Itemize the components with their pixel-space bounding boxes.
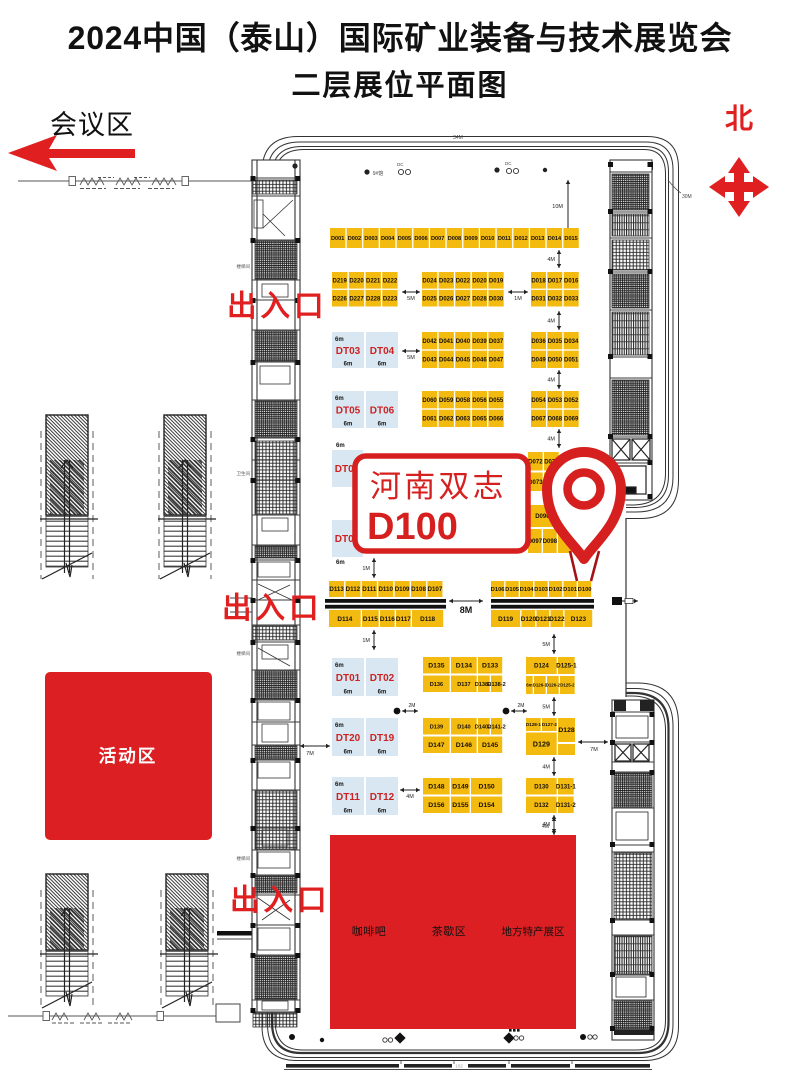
svg-text:6m: 6m <box>336 560 345 566</box>
svg-text:5M: 5M <box>542 705 550 711</box>
svg-text:D127-2: D127-2 <box>542 722 558 727</box>
svg-text:D150: D150 <box>478 784 494 791</box>
svg-text:D051: D051 <box>564 358 579 364</box>
svg-text:卫生间: 卫生间 <box>237 470 251 477</box>
svg-text:1M: 1M <box>362 566 370 572</box>
svg-text:D220: D220 <box>349 278 364 284</box>
svg-text:4M: 4M <box>542 765 550 771</box>
svg-text:出入口: 出入口 <box>222 592 323 625</box>
svg-text:D110: D110 <box>378 586 393 593</box>
svg-text:D013: D013 <box>531 236 544 242</box>
svg-text:10M: 10M <box>552 204 563 210</box>
svg-text:DC: DC <box>397 162 404 167</box>
svg-text:D221: D221 <box>366 278 381 284</box>
svg-text:D017: D017 <box>548 278 563 284</box>
svg-text:D098: D098 <box>543 539 558 545</box>
svg-text:出入口: 出入口 <box>230 884 331 917</box>
svg-text:D003: D003 <box>364 236 377 242</box>
svg-text:D131-2: D131-2 <box>556 803 576 809</box>
svg-text:活动区: 活动区 <box>99 746 158 766</box>
svg-text:6m: 6m <box>344 422 353 428</box>
svg-text:D035: D035 <box>548 339 563 345</box>
svg-text:D061: D061 <box>422 417 437 423</box>
svg-text:D130: D130 <box>534 784 549 790</box>
svg-text:D118: D118 <box>420 616 435 623</box>
svg-text:D155: D155 <box>452 802 468 809</box>
svg-text:二层展位平面图: 二层展位平面图 <box>291 68 508 102</box>
svg-text:D102: D102 <box>549 587 563 593</box>
svg-text:D028: D028 <box>472 296 487 302</box>
svg-text:D018: D018 <box>531 278 546 284</box>
svg-text:DT04: DT04 <box>370 346 395 357</box>
svg-text:2M: 2M <box>518 703 525 709</box>
svg-text:DT12: DT12 <box>370 792 395 803</box>
svg-text:D125-2: D125-2 <box>560 683 575 688</box>
svg-text:DT20: DT20 <box>336 733 361 744</box>
svg-text:D036: D036 <box>531 339 546 345</box>
svg-text:D219: D219 <box>333 278 348 284</box>
svg-text:D037: D037 <box>489 339 504 345</box>
svg-text:河南双志: 河南双志 <box>370 469 507 504</box>
svg-text:D149: D149 <box>452 784 468 791</box>
svg-text:6m: 6m <box>335 782 344 788</box>
svg-text:2M: 2M <box>409 703 416 709</box>
svg-text:5M: 5M <box>542 642 550 648</box>
svg-text:4M: 4M <box>406 794 414 800</box>
svg-text:D066: D066 <box>489 417 504 423</box>
svg-text:1M: 1M <box>362 638 370 644</box>
svg-text:6m: 6m <box>526 683 532 688</box>
svg-text:D114: D114 <box>337 616 352 623</box>
svg-text:北: 北 <box>725 103 753 134</box>
svg-text:D112: D112 <box>346 586 361 593</box>
svg-text:DC: DC <box>505 161 512 166</box>
svg-text:8M: 8M <box>460 605 473 615</box>
svg-text:D140: D140 <box>457 724 470 730</box>
svg-text:DT03: DT03 <box>336 346 361 357</box>
svg-text:7M: 7M <box>590 747 598 753</box>
svg-text:D009: D009 <box>464 236 477 242</box>
svg-text:D226: D226 <box>333 296 348 302</box>
svg-text:D004: D004 <box>381 236 395 242</box>
svg-text:9#馆: 9#馆 <box>373 170 384 177</box>
svg-text:D124: D124 <box>534 663 549 670</box>
svg-text:6m: 6m <box>335 723 344 729</box>
svg-text:D137: D137 <box>457 682 470 688</box>
svg-text:D005: D005 <box>398 236 411 242</box>
svg-text:D126-2: D126-2 <box>546 683 561 688</box>
svg-text:D025: D025 <box>422 296 437 302</box>
svg-text:4M: 4M <box>547 257 555 263</box>
svg-text:6m: 6m <box>336 443 345 449</box>
svg-text:D134: D134 <box>456 663 472 670</box>
svg-text:D060: D060 <box>422 398 437 404</box>
svg-text:楼梯间: 楼梯间 <box>237 650 251 657</box>
svg-text:6m: 6m <box>378 809 387 815</box>
svg-text:D007: D007 <box>431 236 444 242</box>
svg-text:楼梯间: 楼梯间 <box>237 263 251 270</box>
svg-text:D023: D023 <box>439 278 454 284</box>
svg-text:5M: 5M <box>407 296 415 302</box>
svg-text:D044: D044 <box>439 358 454 364</box>
svg-text:D033: D033 <box>564 296 579 302</box>
svg-text:D019: D019 <box>489 278 504 284</box>
svg-text:DT19: DT19 <box>370 733 395 744</box>
svg-text:D043: D043 <box>422 358 437 364</box>
svg-text:6m: 6m <box>344 690 353 696</box>
svg-text:D026: D026 <box>439 296 454 302</box>
svg-text:DT05: DT05 <box>336 406 361 417</box>
svg-text:会议区: 会议区 <box>50 110 134 140</box>
svg-text:5M: 5M <box>407 355 415 361</box>
svg-text:D050: D050 <box>548 358 563 364</box>
svg-text:4M: 4M <box>547 319 555 325</box>
svg-text:D100: D100 <box>578 587 592 593</box>
svg-text:DT11: DT11 <box>336 792 360 803</box>
svg-text:D139: D139 <box>430 724 443 730</box>
svg-text:D047: D047 <box>489 358 504 364</box>
svg-text:D146: D146 <box>456 742 472 749</box>
svg-text:D129: D129 <box>533 739 550 748</box>
svg-text:6m: 6m <box>378 750 387 756</box>
svg-text:D133: D133 <box>482 663 498 670</box>
svg-text:D135: D135 <box>428 663 444 670</box>
svg-text:D030: D030 <box>489 296 504 302</box>
svg-text:D016: D016 <box>564 278 579 284</box>
svg-text:D125-1: D125-1 <box>556 663 577 670</box>
svg-text:D008: D008 <box>448 236 461 242</box>
svg-text:6m: 6m <box>378 422 387 428</box>
svg-text:D045: D045 <box>456 358 471 364</box>
svg-text:D024: D024 <box>422 278 437 284</box>
svg-text:D123: D123 <box>571 616 587 623</box>
svg-text:6m: 6m <box>335 663 344 669</box>
svg-text:D113: D113 <box>329 586 344 593</box>
svg-text:D147: D147 <box>428 742 444 749</box>
svg-text:D105: D105 <box>505 587 520 593</box>
svg-text:6m: 6m <box>344 362 353 368</box>
svg-text:D054: D054 <box>531 398 546 404</box>
svg-text:7M: 7M <box>306 751 314 757</box>
svg-text:D055: D055 <box>489 398 504 404</box>
svg-text:D068: D068 <box>548 417 563 423</box>
svg-text:D015: D015 <box>564 236 577 242</box>
svg-text:D227: D227 <box>349 296 364 302</box>
svg-text:出入口: 出入口 <box>227 290 328 323</box>
svg-text:D034: D034 <box>564 339 579 345</box>
svg-text:D156: D156 <box>428 802 444 809</box>
svg-text:D141-2: D141-2 <box>487 724 505 730</box>
svg-text:D058: D058 <box>456 398 471 404</box>
svg-text:地方特产展区: 地方特产展区 <box>502 925 565 938</box>
svg-text:茶歇区: 茶歇区 <box>432 925 467 938</box>
svg-text:D049: D049 <box>531 358 546 364</box>
svg-text:D032: D032 <box>548 296 563 302</box>
svg-text:D027: D027 <box>456 296 471 302</box>
svg-text:D011: D011 <box>498 236 511 242</box>
svg-text:D059: D059 <box>439 398 454 404</box>
svg-text:D104: D104 <box>520 587 535 593</box>
svg-text:4M: 4M <box>542 824 549 830</box>
svg-text:34M: 34M <box>453 135 463 141</box>
svg-text:D014: D014 <box>548 236 562 242</box>
svg-text:D100: D100 <box>367 506 458 548</box>
svg-text:6m: 6m <box>335 396 344 402</box>
svg-text:1M: 1M <box>514 296 522 302</box>
svg-text:D115: D115 <box>363 616 378 623</box>
svg-text:D052: D052 <box>564 398 579 404</box>
svg-text:6m: 6m <box>335 337 344 343</box>
svg-text:D010: D010 <box>481 236 494 242</box>
svg-text:D063: D063 <box>456 417 471 423</box>
svg-text:4M: 4M <box>547 437 555 443</box>
svg-text:D154: D154 <box>478 802 494 809</box>
svg-text:D228: D228 <box>366 296 381 302</box>
svg-text:D122: D122 <box>549 616 565 623</box>
svg-text:D046: D046 <box>472 358 487 364</box>
svg-text:D128-1: D128-1 <box>526 722 542 727</box>
svg-text:D106: D106 <box>491 587 506 593</box>
svg-text:6m: 6m <box>344 809 353 815</box>
svg-text:D002: D002 <box>348 236 361 242</box>
svg-text:D128: D128 <box>558 727 574 734</box>
svg-text:D222: D222 <box>383 278 398 284</box>
svg-text:D069: D069 <box>564 417 579 423</box>
svg-text:D056: D056 <box>472 398 487 404</box>
svg-text:D116: D116 <box>380 616 395 623</box>
svg-text:D108: D108 <box>411 586 426 593</box>
svg-text:D001: D001 <box>331 236 344 242</box>
svg-text:D020: D020 <box>472 278 487 284</box>
svg-text:D042: D042 <box>422 339 437 345</box>
svg-text:D040: D040 <box>456 339 471 345</box>
svg-text:4M: 4M <box>547 378 555 384</box>
svg-text:D101: D101 <box>563 587 578 593</box>
svg-text:D053: D053 <box>548 398 563 404</box>
svg-text:DT06: DT06 <box>370 406 395 417</box>
svg-text:2024中国（泰山）国际矿业装备与技术展览会: 2024中国（泰山）国际矿业装备与技术展览会 <box>68 20 733 56</box>
svg-text:D041: D041 <box>439 339 454 345</box>
svg-text:6m: 6m <box>344 750 353 756</box>
svg-text:D031: D031 <box>531 296 546 302</box>
svg-text:DT02: DT02 <box>370 673 395 684</box>
svg-text:102: 102 <box>455 1064 463 1069</box>
svg-text:D012: D012 <box>514 236 527 242</box>
svg-text:D107: D107 <box>428 586 443 593</box>
svg-text:D039: D039 <box>472 339 487 345</box>
svg-text:30M: 30M <box>682 194 692 200</box>
svg-text:6m: 6m <box>378 362 387 368</box>
svg-text:D145: D145 <box>482 742 498 749</box>
svg-text:D120: D120 <box>521 616 537 623</box>
svg-text:D022: D022 <box>456 278 471 284</box>
svg-text:6m: 6m <box>378 690 387 696</box>
svg-text:咖啡吧: 咖啡吧 <box>352 924 387 938</box>
svg-text:D138-2: D138-2 <box>487 682 505 688</box>
svg-text:D065: D065 <box>472 417 487 423</box>
svg-text:D223: D223 <box>383 296 398 302</box>
svg-text:D067: D067 <box>531 417 546 423</box>
svg-text:D109: D109 <box>395 586 410 593</box>
svg-text:D117: D117 <box>396 616 411 623</box>
svg-text:D131-1: D131-1 <box>556 784 576 790</box>
svg-text:D132: D132 <box>534 803 549 809</box>
svg-text:D111: D111 <box>362 586 377 593</box>
svg-text:DT01: DT01 <box>336 673 361 684</box>
svg-text:D103: D103 <box>534 587 549 593</box>
svg-text:D006: D006 <box>414 236 427 242</box>
svg-text:楼梯间: 楼梯间 <box>237 855 251 862</box>
svg-text:D148: D148 <box>428 784 444 791</box>
svg-text:D136: D136 <box>430 682 443 688</box>
svg-text:D062: D062 <box>439 417 454 423</box>
svg-text:D119: D119 <box>498 616 513 623</box>
